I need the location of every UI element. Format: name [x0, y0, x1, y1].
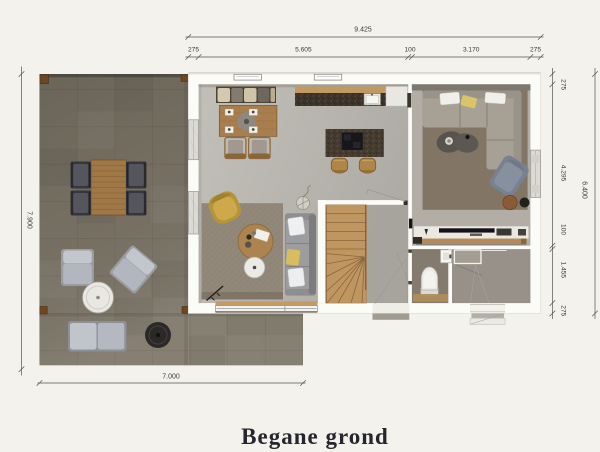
svg-text:100: 100 [560, 224, 567, 235]
svg-text:4.295: 4.295 [560, 165, 567, 182]
svg-text:275: 275 [560, 305, 567, 316]
svg-text:7.900: 7.900 [26, 211, 33, 229]
svg-text:6.400: 6.400 [581, 181, 588, 199]
svg-text:275: 275 [530, 47, 541, 54]
svg-text:Begane grond: Begane grond [241, 424, 389, 449]
svg-text:275: 275 [560, 79, 567, 90]
svg-text:275: 275 [188, 47, 199, 54]
svg-text:9.425: 9.425 [354, 27, 372, 34]
svg-text:3.170: 3.170 [463, 47, 480, 54]
svg-text:5.605: 5.605 [295, 47, 312, 54]
svg-text:7.000: 7.000 [162, 374, 180, 381]
svg-text:1.455: 1.455 [560, 262, 567, 279]
svg-text:100: 100 [404, 47, 415, 54]
